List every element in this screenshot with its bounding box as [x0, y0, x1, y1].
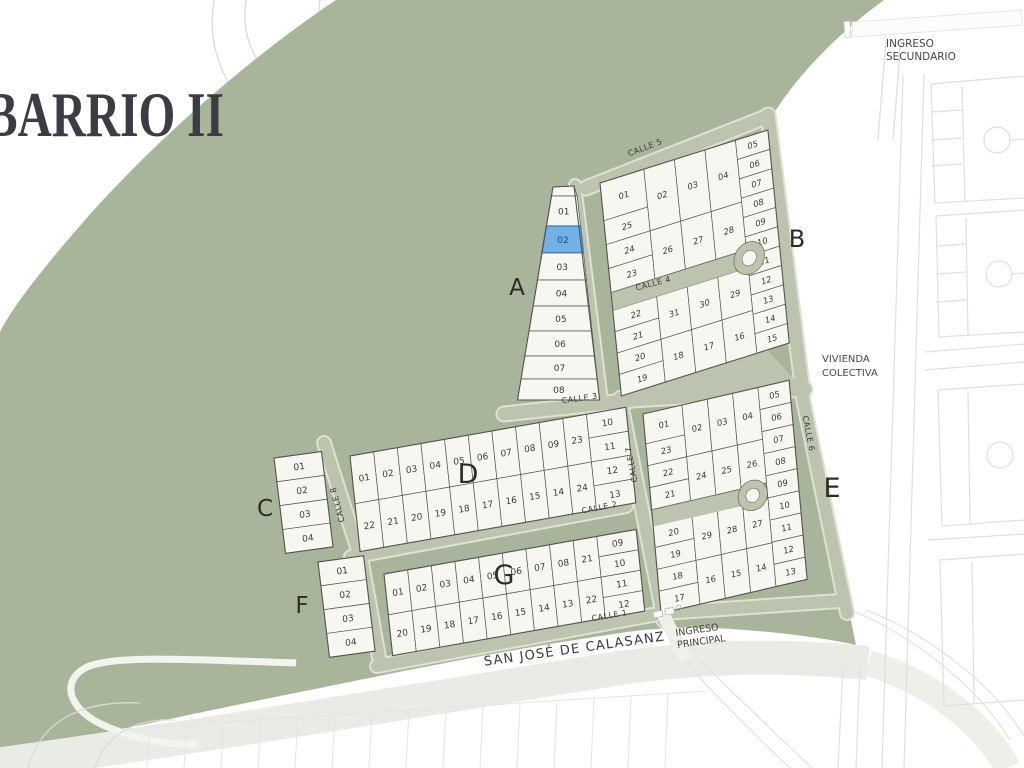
- lot-number: 07: [554, 364, 565, 374]
- lot-G-07[interactable]: 07: [526, 545, 554, 590]
- lot-G-01[interactable]: 01: [384, 570, 412, 615]
- lot-E-28[interactable]: 28: [717, 505, 746, 555]
- vivienda-colectiva-line2: COLECTIVA: [822, 368, 878, 379]
- lot-number: 01: [358, 473, 370, 485]
- lot-A-03[interactable]: 03: [537, 253, 586, 280]
- block-label-g: G: [494, 560, 515, 591]
- lot-G-13[interactable]: 13: [554, 581, 582, 626]
- lot-E-16[interactable]: 16: [696, 555, 725, 605]
- lot-E-25[interactable]: 25: [712, 445, 741, 495]
- site-plan-map: 0102030425242326272805060708091011121314…: [0, 0, 1024, 768]
- block-label-d: D: [458, 459, 479, 490]
- lot-E-04[interactable]: 04: [733, 387, 763, 445]
- ingreso-secundario-line1: INGRESO: [886, 38, 934, 50]
- block-label-b: B: [789, 225, 805, 253]
- lot-G-18[interactable]: 18: [436, 602, 464, 647]
- lot-G-19[interactable]: 19: [412, 606, 440, 651]
- lot-number: 18: [443, 620, 456, 632]
- lot-number: 02: [296, 486, 309, 497]
- lot-number: 23: [571, 435, 583, 447]
- lot-number: 12: [606, 465, 618, 477]
- block-label-f: F: [295, 593, 308, 619]
- lot-number: 01: [293, 462, 306, 473]
- lot-number: 02: [416, 583, 428, 595]
- lot-number: 10: [601, 418, 614, 430]
- lot-number: 17: [467, 616, 479, 628]
- lot-number: 01: [336, 566, 349, 577]
- lot-number: 03: [406, 464, 418, 476]
- lot-number: 02: [382, 469, 394, 481]
- lot-A-07[interactable]: 07: [521, 356, 597, 379]
- lot-B-27[interactable]: 27: [681, 212, 716, 269]
- lot-number: 20: [411, 512, 424, 524]
- lot-number: 01: [558, 208, 569, 218]
- lot-A-06[interactable]: 06: [525, 331, 595, 356]
- lot-G-08[interactable]: 08: [549, 541, 577, 586]
- lot-G-14[interactable]: 14: [530, 586, 558, 631]
- lot-number: 09: [547, 439, 560, 451]
- lot-number: 19: [420, 624, 433, 636]
- lot-E-14[interactable]: 14: [747, 543, 776, 593]
- vivienda-colectiva-line1: VIVIENDA: [822, 354, 870, 365]
- lot-number: 08: [557, 558, 570, 570]
- lot-A-05[interactable]: 05: [529, 306, 592, 331]
- lot-number: 07: [500, 448, 512, 460]
- lot-number: 01: [392, 587, 404, 599]
- lot-E-15[interactable]: 15: [721, 549, 750, 599]
- lot-E-24[interactable]: 24: [687, 451, 716, 501]
- lot-G-17[interactable]: 17: [459, 598, 487, 643]
- lot-number: 04: [345, 638, 358, 650]
- ingreso-secundario-line2: SECUNDARIO: [886, 51, 956, 63]
- lot-number: 06: [554, 340, 566, 350]
- lot-B-03[interactable]: 03: [674, 150, 711, 221]
- lot-number: 19: [434, 508, 447, 520]
- lot-number: 04: [429, 460, 442, 472]
- lot-number: 02: [557, 236, 568, 246]
- lot-number: 10: [614, 559, 627, 571]
- lot-number: 04: [556, 290, 568, 300]
- lot-G-16[interactable]: 16: [483, 594, 511, 639]
- block-E: 0102030423222124252605060708091011121320…: [643, 380, 807, 613]
- lot-number: 24: [576, 483, 589, 495]
- lot-G-04[interactable]: 04: [455, 557, 483, 602]
- lot-number: 03: [299, 510, 312, 521]
- block-A-tip: [551, 186, 577, 196]
- lot-G-20[interactable]: 20: [388, 611, 416, 656]
- block-label-e: E: [823, 473, 840, 504]
- lot-number: 22: [585, 595, 597, 607]
- lot-number: 08: [524, 444, 537, 456]
- lot-number: 02: [339, 590, 352, 601]
- lot-number: 16: [491, 611, 504, 623]
- lot-E-02[interactable]: 02: [682, 399, 712, 457]
- lot-E-29[interactable]: 29: [692, 511, 721, 561]
- lot-number: 22: [363, 521, 375, 533]
- lot-number: 08: [553, 386, 565, 396]
- lot-number: 03: [439, 579, 451, 591]
- page-title: BARRIO II: [0, 79, 224, 150]
- lot-B-02[interactable]: 02: [644, 160, 681, 231]
- lot-number: 04: [463, 575, 476, 587]
- lot-number: 04: [302, 533, 315, 545]
- lot-A-04[interactable]: 04: [533, 280, 589, 306]
- lot-number: 17: [482, 500, 494, 512]
- lot-B-04[interactable]: 04: [705, 140, 742, 211]
- lot-number: 03: [557, 263, 568, 273]
- lot-number: 15: [529, 491, 541, 503]
- lot-number: 05: [555, 315, 566, 325]
- lot-number: 14: [552, 487, 565, 499]
- lot-number: 14: [538, 603, 551, 615]
- lot-number: 21: [387, 516, 399, 528]
- lot-number: 09: [611, 538, 624, 550]
- lot-A-02[interactable]: 02: [542, 226, 584, 253]
- lot-number: 21: [581, 554, 593, 566]
- lot-number: 15: [514, 607, 526, 619]
- lot-G-15[interactable]: 15: [507, 590, 535, 635]
- block-label-c: C: [257, 496, 273, 522]
- lot-number: 03: [342, 614, 355, 625]
- lot-G-03[interactable]: 03: [431, 561, 459, 606]
- block-label-a: A: [509, 275, 525, 301]
- lot-G-02[interactable]: 02: [408, 566, 436, 611]
- lot-G-21[interactable]: 21: [573, 536, 601, 581]
- lot-number: 20: [396, 628, 409, 640]
- lot-E-03[interactable]: 03: [707, 393, 737, 451]
- lot-number: 16: [505, 495, 518, 507]
- lot-B-26[interactable]: 26: [650, 221, 685, 278]
- lot-number: 13: [562, 599, 574, 611]
- lot-number: 11: [616, 579, 628, 591]
- lot-number: 11: [604, 442, 616, 454]
- lot-number: 07: [534, 562, 546, 574]
- lot-number: 18: [458, 504, 471, 516]
